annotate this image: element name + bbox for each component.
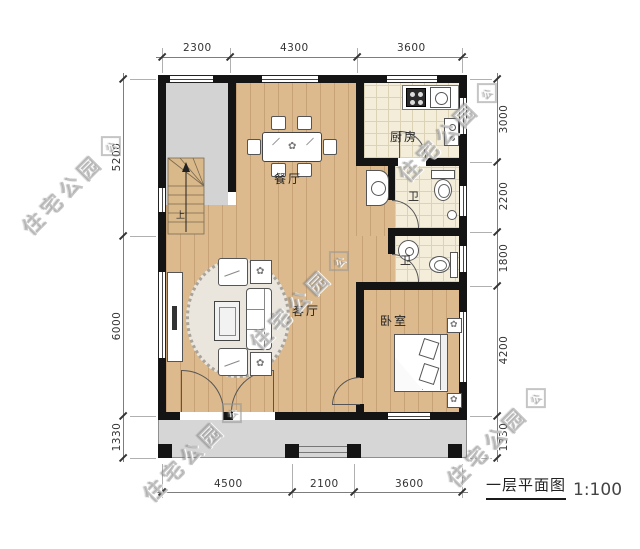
dimension-line <box>156 492 468 493</box>
extension-line <box>470 232 492 233</box>
dining-chair <box>247 139 261 155</box>
blanket-fold <box>395 357 423 390</box>
sink-basin <box>435 92 448 105</box>
window <box>459 246 467 272</box>
window <box>459 186 467 216</box>
stair-direction-label: 上 <box>176 208 185 221</box>
burner <box>410 92 415 97</box>
toilet <box>431 170 455 179</box>
shower-head <box>447 210 457 220</box>
toilet-seat <box>434 260 447 271</box>
table-glass-shine <box>306 138 314 146</box>
wall <box>356 75 364 166</box>
dimension-value: 4200 <box>498 328 510 372</box>
dimension-line <box>123 73 124 462</box>
staircase <box>166 140 232 239</box>
watermark-logo-icon: 公 <box>477 83 497 103</box>
toilet-bowl <box>434 179 452 201</box>
porch-column <box>347 444 361 458</box>
wall <box>356 404 364 420</box>
window <box>158 188 166 212</box>
wall <box>228 75 236 192</box>
dimension-value: 2300 <box>183 42 212 54</box>
wall <box>158 75 166 188</box>
armchair-line <box>224 270 239 276</box>
extension-line <box>470 286 492 287</box>
watermark-text: 住宅公园 <box>15 147 110 242</box>
wall <box>459 134 467 186</box>
bed <box>394 334 448 392</box>
wall <box>275 412 388 420</box>
wall <box>318 75 387 83</box>
toilet-seat <box>438 184 450 198</box>
dimension-value: 3000 <box>498 97 510 141</box>
dining-chair <box>323 139 337 155</box>
extension-line <box>354 464 355 498</box>
armchair-line <box>224 360 239 366</box>
hall-vanity <box>366 170 389 206</box>
extension-line <box>130 236 156 237</box>
pillow <box>419 338 440 360</box>
bathroom2-label: 卫 <box>400 252 413 268</box>
dimension-value: 6000 <box>111 304 123 348</box>
sofa-cushion-line <box>247 309 265 310</box>
coffee-table-glass <box>219 307 236 336</box>
pillow <box>419 363 440 385</box>
extension-line <box>130 416 156 417</box>
vanity-basin <box>371 181 386 196</box>
wall <box>459 272 467 312</box>
dimension-value: 2200 <box>498 174 510 218</box>
watermark: 住宅公园 公 <box>15 128 128 241</box>
dining-room-label: 餐厅 <box>274 170 302 187</box>
coffee-table <box>214 301 240 341</box>
armchair <box>218 258 248 286</box>
dimension-value: 3600 <box>395 478 424 490</box>
drawing-title-text: 一层平面图 <box>486 474 566 500</box>
dimension-value: 2100 <box>310 478 339 490</box>
dimension-value: 4300 <box>280 42 309 54</box>
dimension-line <box>156 57 468 58</box>
window <box>158 272 166 358</box>
wall <box>356 290 364 378</box>
dining-chair <box>297 116 312 130</box>
dining-table: ✿ <box>262 132 322 162</box>
bedroom-label: 卧室 <box>380 312 408 329</box>
extension-line <box>230 48 231 73</box>
nightstand-plant: ✿ <box>450 395 458 405</box>
wall <box>158 212 166 272</box>
wall <box>158 412 180 420</box>
tv <box>172 306 177 330</box>
watermark-logo-icon: 公 <box>222 403 242 423</box>
wall <box>213 75 262 83</box>
extension-line <box>470 416 492 417</box>
floor-plan-image: 上 <box>0 0 640 549</box>
side-table: ✿ <box>250 352 272 376</box>
window <box>388 412 430 420</box>
side-table: ✿ <box>250 260 272 284</box>
entry-door-leaf <box>273 370 274 412</box>
extension-line <box>357 48 358 73</box>
dimension-value: 4500 <box>214 478 243 490</box>
extension-line <box>162 48 163 73</box>
drawing-scale: 1:100 <box>573 480 622 500</box>
table-glass-shine <box>272 138 280 146</box>
wall <box>430 412 467 420</box>
window <box>262 75 318 83</box>
extension-line <box>292 464 293 498</box>
drawing-title: 一层平面图 1:100 <box>486 474 622 500</box>
toilet-bowl <box>429 256 450 273</box>
side-table-plant: ✿ <box>256 359 264 369</box>
dimension-value: 3600 <box>397 42 426 54</box>
entry-steps <box>299 446 347 458</box>
watermark-logo-icon: 公 <box>526 388 546 408</box>
dimension-value: 1800 <box>498 236 510 280</box>
table-centerpiece: ✿ <box>288 142 296 152</box>
kitchen-label: 厨房 <box>390 128 418 145</box>
watermark-logo-icon: 公 <box>329 251 349 271</box>
extension-line <box>462 48 463 73</box>
nightstand: ✿ <box>447 393 462 408</box>
extension-line <box>130 79 156 80</box>
window <box>170 75 213 83</box>
nightstand: ✿ <box>447 318 462 333</box>
side-table-plant: ✿ <box>256 267 264 277</box>
wall <box>388 236 395 254</box>
extension-line <box>130 458 156 459</box>
dining-chair <box>271 116 286 130</box>
tv-stand <box>167 272 183 362</box>
nightstand-plant: ✿ <box>450 320 458 330</box>
toilet <box>450 252 458 278</box>
watermark-logo-icon: 公 <box>101 136 121 156</box>
dimension-value: 1330 <box>111 415 123 459</box>
porch-column <box>285 444 299 458</box>
wall <box>388 228 467 236</box>
bed-headboard <box>440 335 447 390</box>
kitchen-sink <box>430 87 451 108</box>
wall <box>158 358 166 420</box>
window <box>387 75 437 83</box>
stove <box>406 88 426 107</box>
wall <box>388 166 395 200</box>
bathroom1-label: 卫 <box>408 188 421 204</box>
armchair <box>218 348 248 376</box>
extension-line <box>470 162 492 163</box>
wall <box>356 282 467 290</box>
